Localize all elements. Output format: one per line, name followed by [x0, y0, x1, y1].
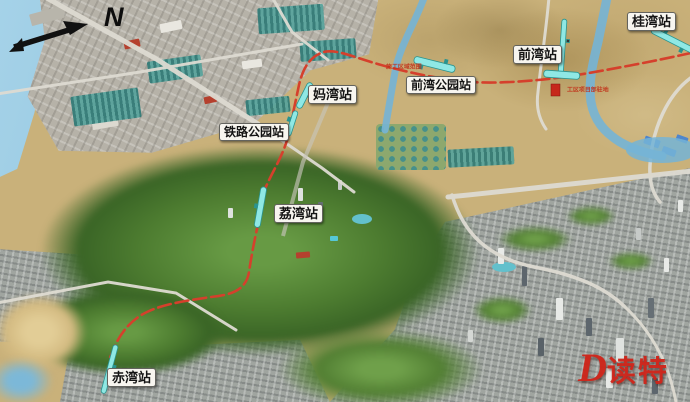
station-label-mawan: 妈湾站	[308, 85, 357, 104]
station-label-qianwan-park: 前湾公园站	[406, 76, 476, 94]
logo-d-icon: D	[578, 348, 607, 388]
compass-n-label: N	[104, 2, 124, 33]
station-label-chiwan: 赤湾站	[107, 368, 156, 387]
station-label-guiwan: 桂湾站	[627, 12, 676, 31]
compass-arrow-icon	[9, 21, 88, 52]
roads	[0, 0, 690, 402]
station-marker-liwan	[251, 186, 267, 228]
red-note-2: 工区项目部驻地	[567, 87, 609, 93]
watermark-logo: D 读特	[578, 348, 669, 390]
station-label-liwan: 荔湾站	[274, 204, 323, 223]
construction-marker	[551, 84, 560, 96]
metro-line	[109, 51, 690, 360]
red-note-1: 施工区域范围	[386, 64, 422, 70]
station-label-qianwan: 前湾站	[513, 45, 562, 64]
logo-text: 读特	[607, 348, 669, 390]
map-vector-overlay	[0, 0, 690, 402]
bay-water	[626, 137, 690, 163]
station-label-railway-park: 铁路公园站	[219, 123, 289, 141]
aerial-map: 桂湾站 前湾站 前湾公园站 妈湾站 铁路公园站 荔湾站 赤湾站 施工区域范围 工…	[0, 0, 690, 402]
